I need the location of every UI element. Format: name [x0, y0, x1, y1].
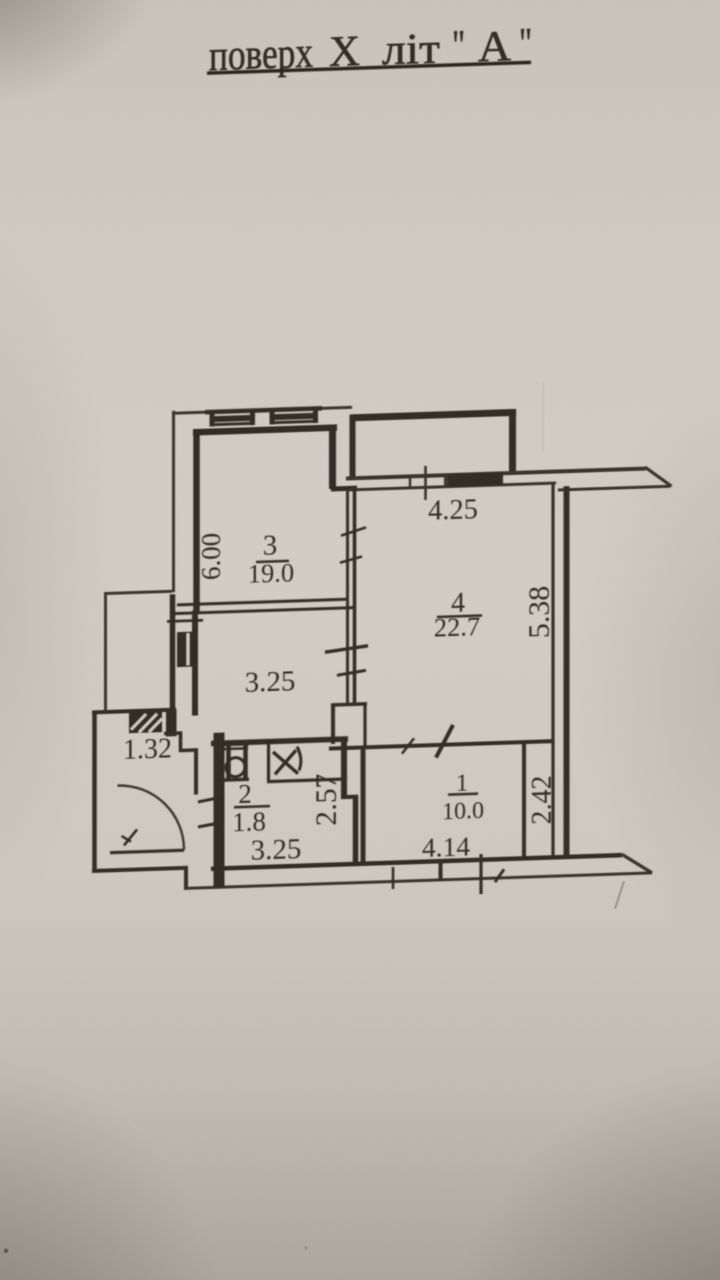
svg-text:2.57: 2.57 — [310, 773, 343, 827]
svg-text:2: 2 — [238, 779, 251, 809]
svg-text:10.0: 10.0 — [442, 798, 484, 825]
svg-text:1.8: 1.8 — [232, 806, 266, 837]
svg-text:1.32: 1.32 — [123, 733, 172, 766]
svg-text:6.00: 6.00 — [196, 532, 226, 580]
svg-text:4.25: 4.25 — [428, 494, 478, 527]
svg-text:5.38: 5.38 — [523, 585, 556, 639]
svg-text:1: 1 — [456, 769, 468, 796]
svg-text:3.25: 3.25 — [245, 665, 296, 699]
svg-text:2.42: 2.42 — [527, 775, 558, 825]
svg-text:3.25: 3.25 — [251, 833, 302, 867]
